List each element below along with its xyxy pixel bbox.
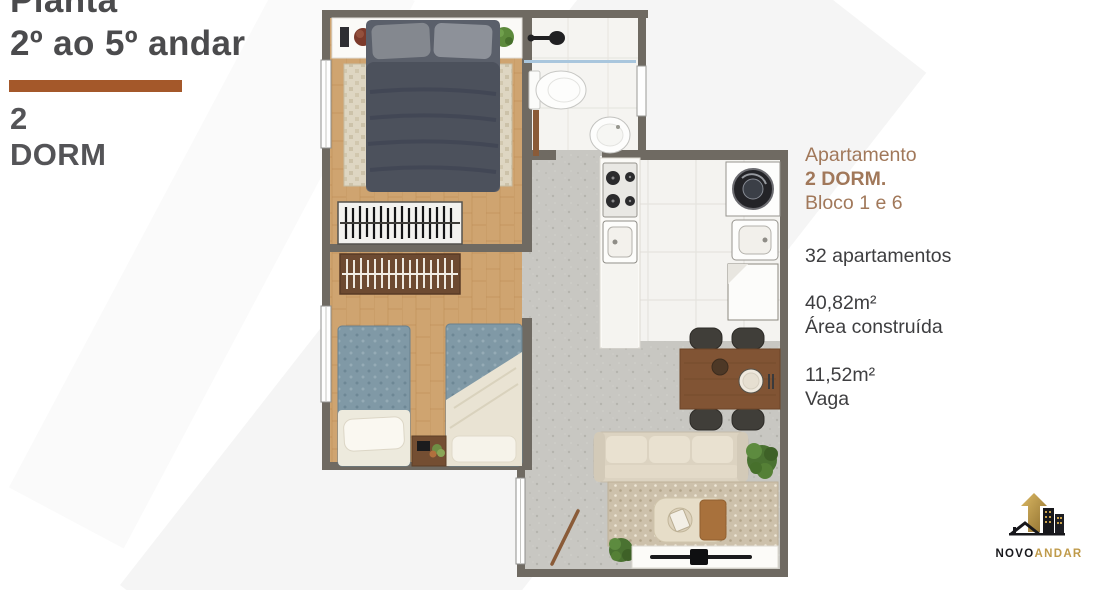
logo-text-andar: ANDAR bbox=[1035, 548, 1083, 560]
dorm-label: 2 DORM bbox=[10, 101, 106, 173]
built-area-label: Área construída bbox=[805, 315, 951, 339]
details-heading: Apartamento 2 DORM. Bloco 1 e 6 bbox=[805, 143, 951, 215]
logo-text-novo: NOVO bbox=[995, 548, 1034, 560]
kitchen-sink-icon bbox=[603, 221, 637, 263]
details-heading-line3: Bloco 1 e 6 bbox=[805, 191, 951, 215]
slide: Planta 2º ao 5º andar 2 DORM bbox=[0, 0, 1097, 590]
single-bed-right bbox=[446, 324, 522, 466]
accent-bar bbox=[9, 80, 182, 92]
toilet-icon bbox=[529, 71, 586, 109]
details-heading-line2: 2 DORM. bbox=[805, 167, 951, 191]
stove-icon bbox=[603, 163, 637, 217]
company-logo: NOVOANDAR bbox=[993, 492, 1085, 560]
counter-lower bbox=[602, 264, 638, 348]
fridge-icon bbox=[728, 264, 778, 320]
nightstand bbox=[412, 436, 446, 466]
built-area-value: 40,82m² bbox=[805, 291, 951, 315]
apartments-count: 32 apartamentos bbox=[805, 244, 951, 268]
parking-label: Vaga bbox=[805, 387, 951, 411]
window-bedroom1 bbox=[321, 60, 331, 148]
bathroom-sink-icon bbox=[590, 117, 630, 153]
wardrobe-rack-2 bbox=[340, 254, 460, 294]
tv-bench bbox=[632, 546, 778, 568]
window-bathroom bbox=[637, 66, 646, 116]
sofa bbox=[594, 432, 748, 482]
double-bed bbox=[366, 20, 500, 192]
logo-buildings-icon bbox=[1043, 508, 1064, 534]
single-bed-left bbox=[338, 326, 410, 466]
wardrobe-rack-1 bbox=[338, 202, 462, 244]
details-heading-line1: Apartamento bbox=[805, 143, 951, 167]
bathroom-door-leaf bbox=[533, 110, 539, 156]
window-bedroom2 bbox=[321, 306, 331, 402]
apartment-details: Apartamento 2 DORM. Bloco 1 e 6 32 apart… bbox=[805, 143, 951, 435]
floor-plan bbox=[318, 8, 788, 577]
title-line-1: Planta bbox=[10, 0, 330, 22]
title-line-2: 2º ao 5º andar bbox=[10, 22, 330, 65]
parking-value: 11,52m² bbox=[805, 363, 951, 387]
laundry-sink-icon bbox=[732, 220, 778, 260]
logo-mark-icon bbox=[1007, 492, 1071, 542]
washing-machine-icon bbox=[726, 162, 780, 216]
logo-text: NOVOANDAR bbox=[993, 548, 1085, 560]
built-area: 40,82m² Área construída bbox=[805, 291, 951, 339]
coffee-table bbox=[654, 498, 726, 542]
page-title: Planta 2º ao 5º andar bbox=[10, 0, 330, 65]
window-living bbox=[516, 478, 525, 564]
parking: 11,52m² Vaga bbox=[805, 363, 951, 411]
shower-threshold bbox=[524, 60, 636, 63]
